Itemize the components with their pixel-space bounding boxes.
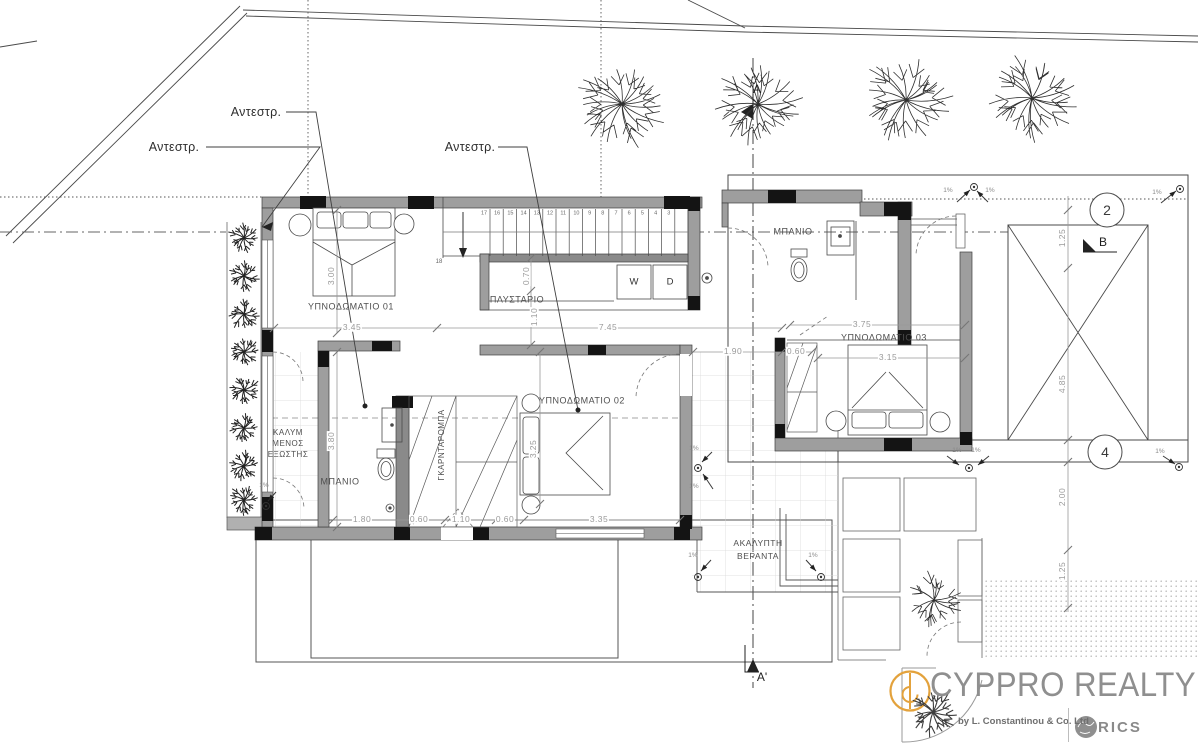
- room-label-bedroom02: ΥΠΝΟΔΩΜΑΤΙΟ 02: [539, 397, 625, 406]
- room-label-veranda-1: ΑΚΑΛΥΠΤΗ: [733, 539, 782, 548]
- stair-number: 3: [667, 211, 670, 217]
- slope-label: 1%: [952, 448, 961, 455]
- stair-number: 8: [601, 211, 604, 217]
- room-label-laundry: ΠΛΥΣΤΑΡΙΟ: [490, 296, 544, 305]
- logo-divider: [1068, 708, 1069, 742]
- dimension-label: 3.80: [327, 431, 336, 451]
- logo-brand-text: CYPPRO REALTY: [930, 666, 1196, 705]
- plan-linework: [0, 0, 1200, 751]
- room-label-balcony-1: ΚΑΛΥΜ: [273, 429, 303, 437]
- dimension-label: 0.70: [522, 266, 531, 286]
- slope-label: 1%: [943, 188, 952, 195]
- stair-number: 15: [507, 211, 513, 217]
- room-label-bath-left: ΜΠΑΝΙΟ: [321, 478, 360, 487]
- dimension-label: 1.80: [352, 515, 372, 524]
- stair-number: 9: [588, 211, 591, 217]
- room-label-bath-top: ΜΠΑΝΙΟ: [774, 228, 813, 237]
- dimension-label: 1.25: [1058, 561, 1067, 581]
- floor-plan-canvas: ΥΠΝΟΔΩΜΑΤΙΟ 01 ΠΛΥΣΤΑΡΙΟ ΜΠΑΝΙΟ ΥΠΝΟΔΩΜΑ…: [0, 0, 1200, 751]
- stair-number: 10: [573, 211, 579, 217]
- stair-number: 16: [494, 211, 500, 217]
- riser-18-label: 18: [436, 259, 443, 265]
- room-label-veranda-2: ΒΕΡΑΝΤΑ: [737, 552, 779, 561]
- dimension-label: 0.60: [495, 515, 515, 524]
- stair-number: 7: [614, 211, 617, 217]
- dimension-label: 4.85: [1058, 374, 1067, 394]
- dimension-label: 3.35: [589, 515, 609, 524]
- slope-label: 1%: [1152, 190, 1161, 197]
- slope-label: 1%: [259, 483, 268, 490]
- dimension-label: 1.25: [1058, 228, 1067, 248]
- slope-label: 1%: [985, 188, 994, 195]
- section-marker-a: A: [753, 83, 761, 95]
- dimension-label: 7.45: [598, 323, 618, 332]
- dimension-label: 3.15: [878, 353, 898, 362]
- annotation-inverted-1: Αντεστρ.: [149, 141, 200, 154]
- dimension-label: 3.75: [852, 320, 872, 329]
- room-label-balcony-3: ΕΞΩΣΤΗΣ: [268, 451, 309, 459]
- dimension-label: 1.10: [451, 515, 471, 524]
- stair-number: 17: [481, 211, 487, 217]
- dimension-label: 0.60: [409, 515, 429, 524]
- grid-bubble-4: 4: [1101, 445, 1109, 459]
- section-marker-a-prime: A': [757, 671, 767, 683]
- dimension-label: 2.00: [1058, 487, 1067, 507]
- logo-byline: by L. Constantinou & Co. Ltd: [958, 716, 1089, 727]
- annotation-inverted-2: Αντεστρ.: [231, 106, 282, 119]
- room-label-wardrobe: ΓΚΑΡΝΤΑΡΟΜΠΑ: [438, 409, 446, 480]
- room-label-balcony-2: ΜΕΝΟΣ: [272, 440, 303, 448]
- slope-label: 1%: [688, 553, 697, 560]
- realty-logo: CYPPRO REALTY by L. Constantinou & Co. L…: [886, 658, 1198, 748]
- rics-label: RICS: [1098, 719, 1142, 736]
- stair-number: 6: [628, 211, 631, 217]
- dimension-label: 3.25: [529, 439, 538, 459]
- stair-number: 12: [547, 211, 553, 217]
- stair-number: 11: [560, 211, 566, 217]
- dimension-label: 3.45: [342, 323, 362, 332]
- annotation-inverted-3: Αντεστρ.: [445, 141, 496, 154]
- grid-bubble-2: 2: [1103, 203, 1111, 217]
- slope-label: 1%: [1155, 449, 1164, 456]
- dryer-label: D: [667, 277, 674, 287]
- washer-label: W: [630, 277, 639, 287]
- slope-label: 1%: [689, 446, 698, 453]
- slope-label: 1%: [808, 553, 817, 560]
- dimension-label: 1.90: [723, 347, 743, 356]
- room-label-bedroom01: ΥΠΝΟΔΩΜΑΤΙΟ 01: [308, 303, 394, 312]
- slope-label: 1%: [689, 484, 698, 491]
- veranda-tiles: [775, 451, 838, 592]
- dimension-label: 0.60: [786, 347, 806, 356]
- stair-number: 4: [654, 211, 657, 217]
- stair-number: 5: [641, 211, 644, 217]
- room-label-bedroom03: ΥΠΝΟΔΩΜΑΤΙΟ 03: [841, 334, 927, 343]
- stair-number: 13: [534, 211, 540, 217]
- section-marker-b: B: [1099, 236, 1107, 248]
- rooflight: [1008, 225, 1148, 440]
- dimension-label: 3.00: [327, 266, 336, 286]
- slope-label: 1%: [971, 448, 980, 455]
- dimension-label: 1.10: [530, 307, 539, 327]
- stair-number: 14: [521, 211, 527, 217]
